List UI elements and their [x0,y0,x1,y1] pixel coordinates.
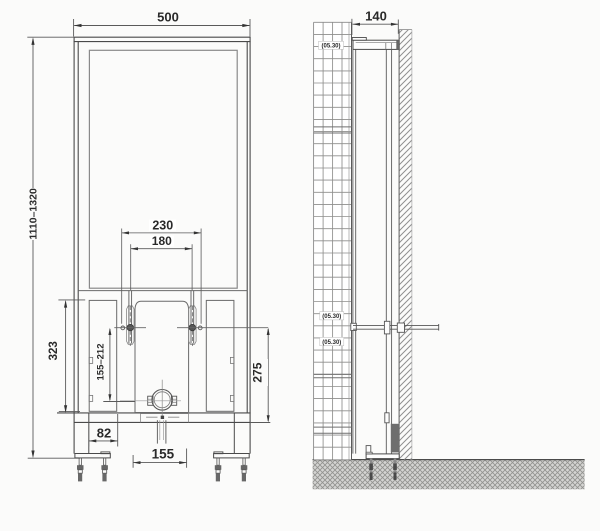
svg-text:230: 230 [152,218,173,232]
svg-text:1110–1320: 1110–1320 [28,188,40,240]
svg-text:275: 275 [250,362,264,382]
svg-text:155: 155 [152,446,175,461]
svg-text:140: 140 [365,8,387,23]
svg-text:500: 500 [157,10,179,25]
svg-text:323: 323 [48,341,60,360]
svg-text:155–212: 155–212 [95,344,106,381]
svg-text:180: 180 [152,234,172,248]
svg-text:(05.30): (05.30) [322,340,341,346]
svg-text:(05.30): (05.30) [322,314,341,320]
svg-text:(05.30): (05.30) [321,44,340,50]
svg-text:82: 82 [97,425,111,440]
